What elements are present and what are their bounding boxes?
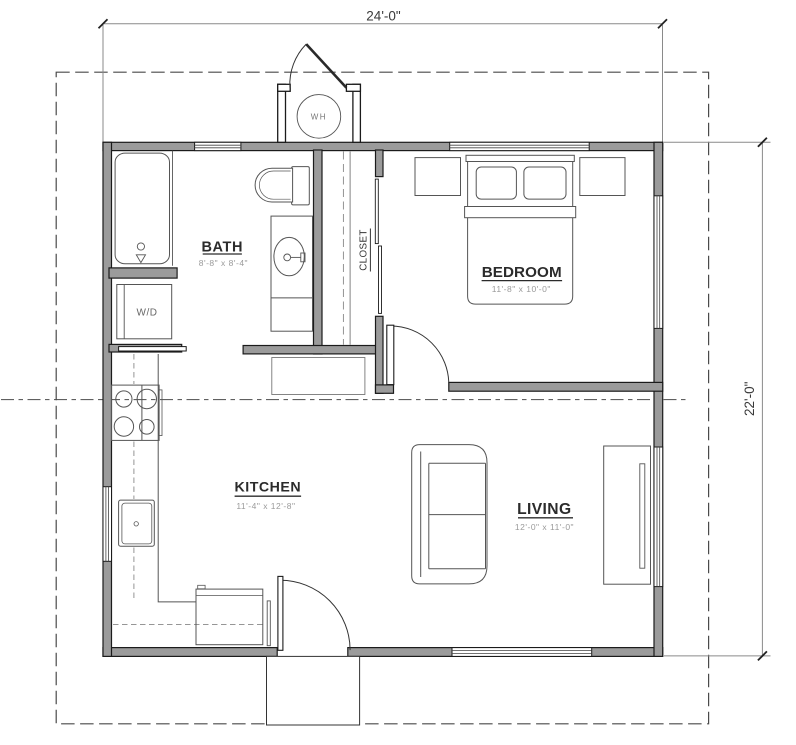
svg-text:11'-8" x 10'-0": 11'-8" x 10'-0" bbox=[492, 284, 551, 294]
svg-text:BEDROOM: BEDROOM bbox=[482, 264, 562, 281]
svg-text:CLOSET: CLOSET bbox=[358, 229, 369, 271]
svg-text:BATH: BATH bbox=[201, 240, 243, 256]
svg-text:WH: WH bbox=[311, 113, 327, 122]
svg-text:22'-0": 22'-0" bbox=[742, 381, 757, 416]
svg-text:11'-4" x 12'-8": 11'-4" x 12'-8" bbox=[236, 501, 295, 511]
svg-text:W/D: W/D bbox=[137, 307, 158, 318]
svg-text:24'-0": 24'-0" bbox=[366, 9, 401, 24]
svg-text:KITCHEN: KITCHEN bbox=[235, 480, 302, 496]
svg-text:8'-8" x 8'-4": 8'-8" x 8'-4" bbox=[199, 258, 248, 268]
svg-text:12'-0" x 11'-0": 12'-0" x 11'-0" bbox=[515, 522, 574, 532]
svg-text:LIVING: LIVING bbox=[517, 501, 571, 518]
